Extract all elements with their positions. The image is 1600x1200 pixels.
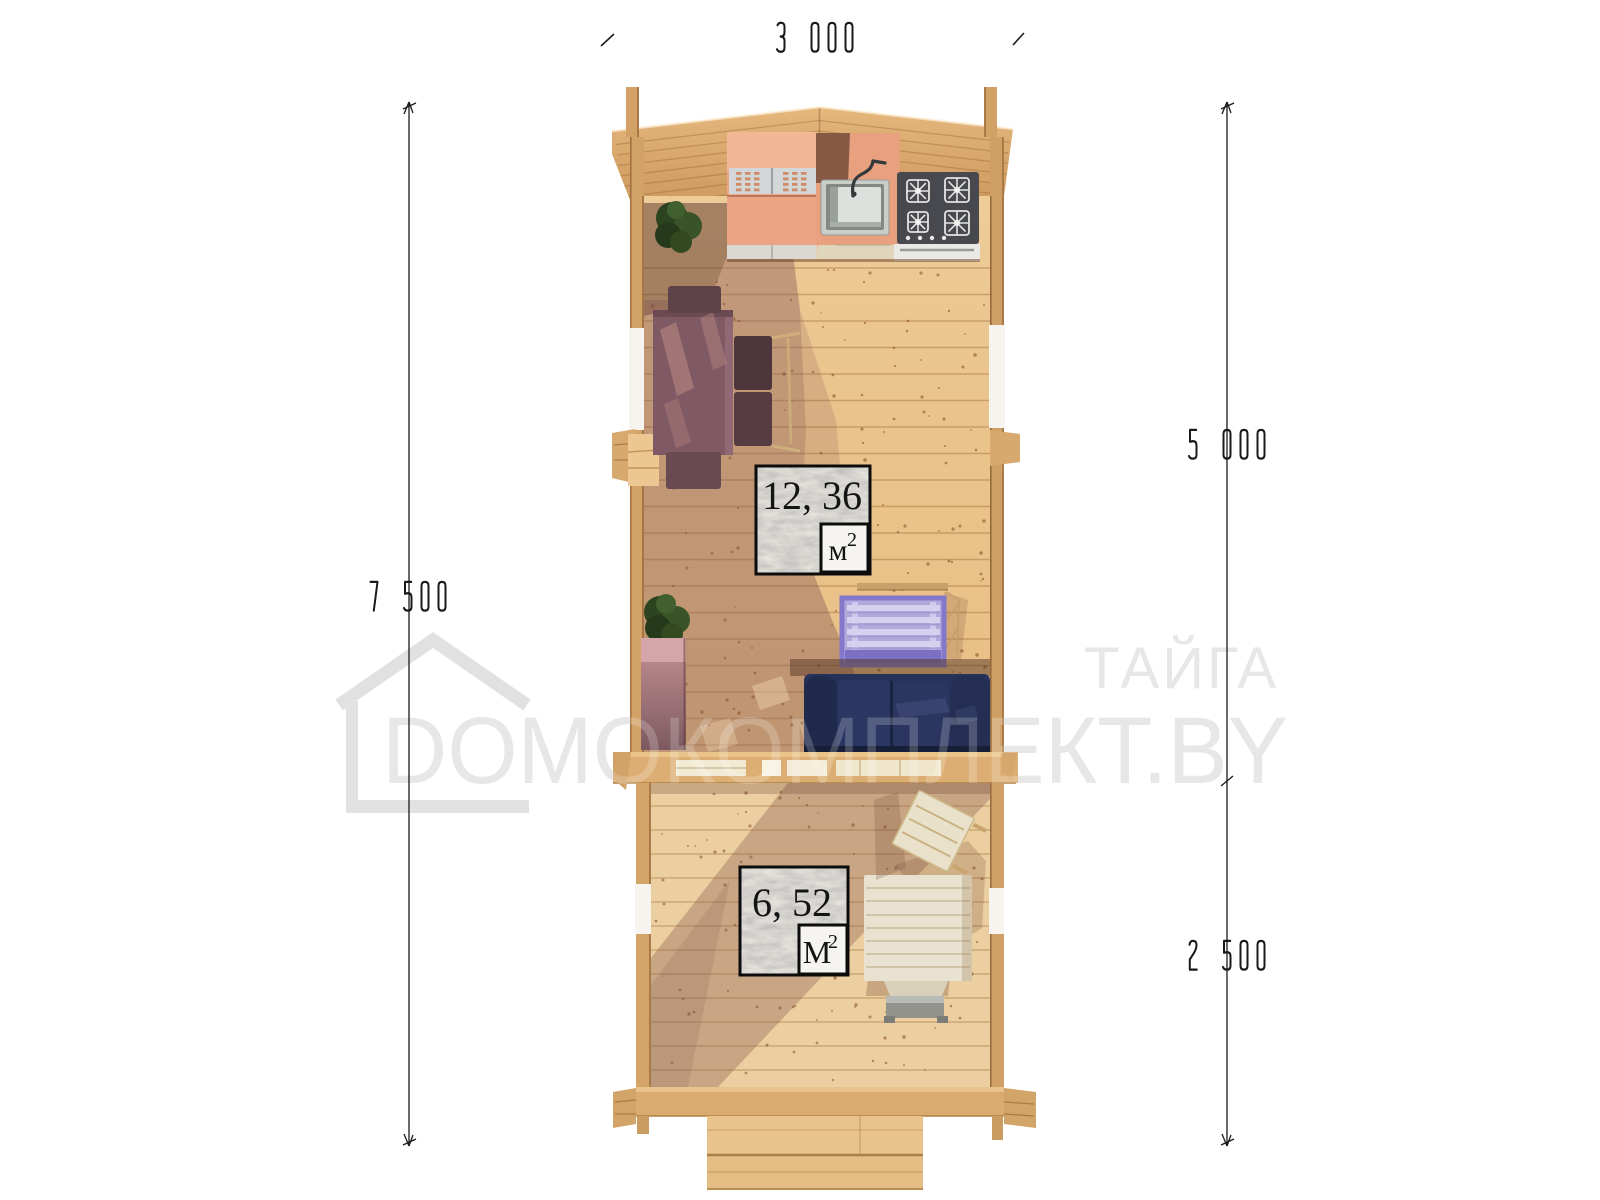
svg-text:ТАЙГА: ТАЙГА [1084, 636, 1279, 701]
svg-text:2: 2 [847, 529, 857, 551]
svg-text:6, 52: 6, 52 [752, 880, 832, 925]
svg-text:2: 2 [828, 931, 838, 953]
svg-text:М: М [803, 934, 831, 970]
svg-text:м: м [829, 534, 848, 567]
svg-text:12, 36: 12, 36 [762, 473, 862, 518]
svg-text:DOMOКОМПЛЕКТ.BY: DOMOКОМПЛЕКТ.BY [382, 698, 1288, 804]
